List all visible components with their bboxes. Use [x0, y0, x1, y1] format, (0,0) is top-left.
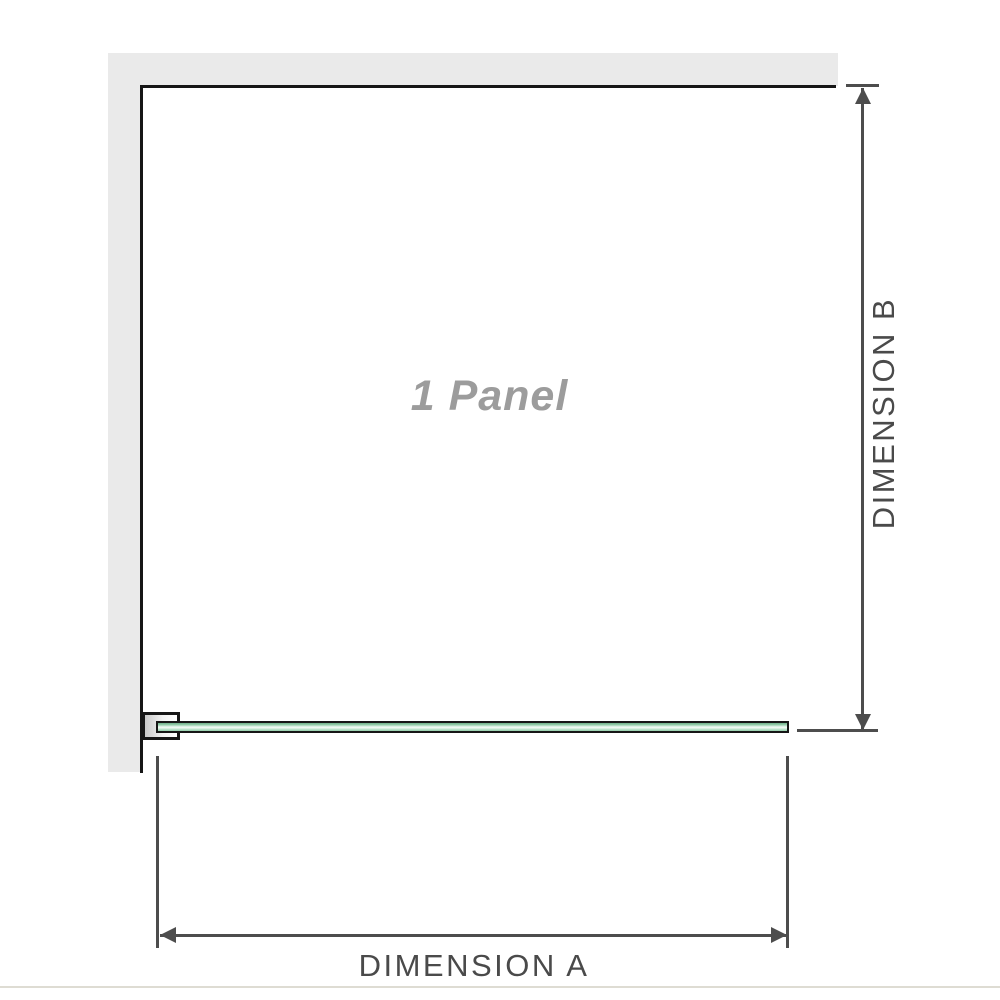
arrow-right-icon: [771, 927, 787, 943]
opening-left-edge: [140, 85, 143, 773]
opening-top-edge: [140, 85, 836, 88]
arrow-down-icon: [855, 714, 871, 730]
dimension-b-line: [861, 88, 864, 730]
shower-panel-dimension-diagram: 1 Panel DIMENSION B DIMENSION A: [0, 0, 1000, 1000]
arrow-up-icon: [855, 88, 871, 104]
dimension-a-label: DIMENSION A: [160, 948, 788, 984]
panel-count-label: 1 Panel: [143, 372, 836, 421]
arrow-left-icon: [160, 927, 176, 943]
dimension-a-line: [160, 934, 788, 937]
wall-left: [108, 53, 141, 772]
wall-top: [108, 53, 838, 86]
dimension-a-right-extension: [786, 756, 789, 948]
baseline-rule: [0, 986, 1000, 988]
glass-panel: [156, 721, 789, 733]
dimension-b-label: DIMENSION B: [866, 297, 902, 529]
dimension-b-top-tick: [846, 84, 879, 87]
dimension-a-left-extension: [156, 756, 159, 948]
